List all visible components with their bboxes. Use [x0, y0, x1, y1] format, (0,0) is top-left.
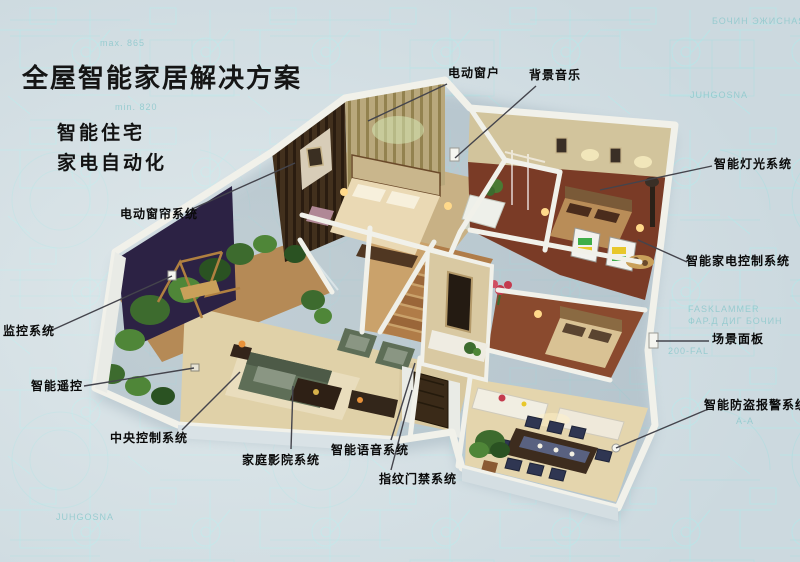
callout-line-monitoring-system	[50, 276, 172, 331]
smart-home-infographic: БОЧИН ЭЖИСНАЯJUHGOSNAmax. 865min. 820FAS…	[0, 0, 800, 562]
callout-line-electric-curtain-system	[190, 163, 295, 210]
callout-line-smart-voice-system	[391, 363, 415, 440]
callout-line-central-control-system	[182, 372, 240, 430]
callout-line-smart-remote-control	[84, 368, 194, 386]
callout-line-electric-window	[368, 84, 447, 121]
callout-line-smart-lighting-system	[600, 166, 712, 190]
callout-line-smart-antitheft-alarm-system	[616, 410, 706, 448]
callout-lines	[0, 0, 800, 562]
callout-line-smart-appliance-control-system	[638, 240, 687, 262]
callout-line-background-music	[455, 86, 536, 158]
callout-line-home-theater-system	[291, 386, 293, 449]
